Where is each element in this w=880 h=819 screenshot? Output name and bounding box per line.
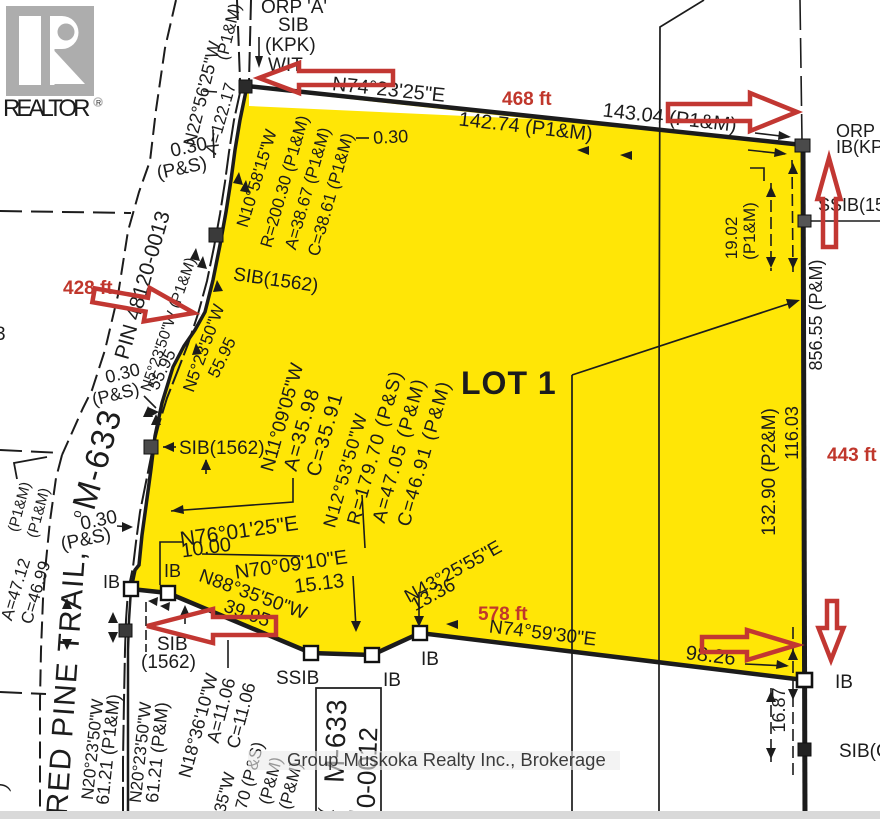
svg-text:IB: IB (164, 561, 181, 581)
svg-text:116.03: 116.03 (782, 406, 802, 460)
svg-text:(P1&M): (P1&M) (740, 202, 759, 260)
svg-text:(1562): (1562) (141, 652, 196, 673)
svg-text:SIB(CC: SIB(CC (839, 741, 880, 762)
svg-text:443 ft: 443 ft (827, 445, 877, 466)
svg-text:SSIB(15: SSIB(15 (818, 195, 880, 215)
svg-text:SIB(1562): SIB(1562) (179, 438, 265, 459)
svg-text:SSIB: SSIB (276, 668, 319, 689)
svg-text:IB: IB (835, 672, 853, 693)
svg-text:468 ft: 468 ft (502, 89, 552, 110)
svg-text:REALTOR: REALTOR (3, 95, 92, 122)
svg-text:0.30: 0.30 (373, 126, 409, 148)
svg-text:SIB: SIB (278, 15, 309, 36)
svg-text:3: 3 (0, 324, 6, 345)
svg-text:LOT 1: LOT 1 (461, 365, 557, 401)
svg-text:132.90 (P2&M): 132.90 (P2&M) (759, 408, 780, 536)
svg-text:IB: IB (383, 670, 401, 691)
svg-text:Group Muskoka Realty Inc., Bro: Group Muskoka Realty Inc., Brokerage (287, 749, 606, 770)
svg-text:(KPK): (KPK) (265, 35, 316, 56)
svg-text:19.02: 19.02 (722, 217, 741, 260)
svg-text:IB(KPK): IB(KPK) (836, 137, 880, 157)
svg-text:M-633: M-633 (319, 698, 353, 783)
svg-text:IB: IB (103, 572, 120, 592)
svg-text:578 ft: 578 ft (478, 604, 528, 625)
svg-text:856.55 (P&M): 856.55 (P&M) (806, 259, 826, 370)
svg-text:IB: IB (421, 649, 439, 670)
svg-text:16.87: 16.87 (769, 687, 789, 732)
svg-text:R: R (96, 100, 101, 107)
